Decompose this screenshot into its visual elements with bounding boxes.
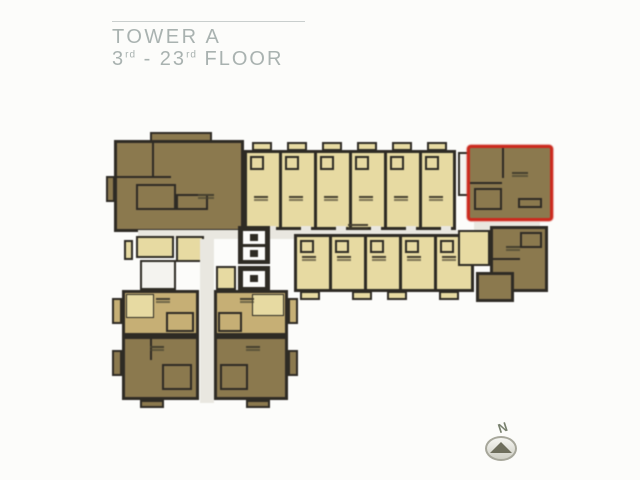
end-unit-label-mark <box>506 246 520 248</box>
unit-bath <box>250 156 264 170</box>
mid-row-divider <box>434 234 437 292</box>
unit-bath <box>285 156 299 170</box>
corridor-vertical <box>200 239 214 403</box>
stairs-core <box>140 260 176 290</box>
core-room <box>136 236 174 258</box>
top-row-divider <box>384 150 387 230</box>
unit-label-mark <box>254 196 268 198</box>
end-room <box>458 230 490 266</box>
highlighted-unit-bath <box>474 188 502 210</box>
top-row-divider <box>279 150 282 230</box>
highlighted-unit-partition-h <box>470 182 502 184</box>
unit-a-partition-v <box>152 143 154 177</box>
unit-bath <box>335 240 349 253</box>
bottom-r2-right-bath <box>220 364 248 390</box>
balcony <box>392 142 412 151</box>
elevator-car <box>250 250 258 257</box>
highlighted-unit-closet <box>518 198 542 208</box>
corridor-label-mark <box>348 224 368 226</box>
unit-label-mark <box>324 196 338 198</box>
unit-label-mark <box>359 196 373 198</box>
unit-bath <box>440 240 454 253</box>
end-unit-partition <box>492 258 520 260</box>
balcony <box>288 298 298 324</box>
unit-label-mark <box>289 196 303 198</box>
top-row-divider <box>419 150 422 230</box>
highlighted-unit-partition-v <box>502 148 504 178</box>
core-balcony <box>124 240 133 260</box>
unit-label-mark <box>302 256 316 258</box>
balcony <box>300 291 320 300</box>
balcony <box>246 400 270 408</box>
unit-label-mark <box>394 196 408 198</box>
unit-a-label-mark <box>198 194 214 196</box>
unit-a-body <box>114 140 244 232</box>
compass-dial-icon <box>485 436 517 461</box>
balcony <box>322 142 342 151</box>
unit-bath <box>405 240 419 253</box>
elevator-car <box>250 234 258 241</box>
bottom-r1-right-bath <box>218 312 242 332</box>
balcony <box>352 291 372 300</box>
bottom-r2-left-bath <box>162 364 192 390</box>
balcony <box>439 291 459 300</box>
balcony <box>427 142 447 151</box>
unit-a-partition-h <box>117 176 171 178</box>
unit-a-bath-2 <box>176 194 208 210</box>
balcony <box>387 291 407 300</box>
unit-bath <box>300 240 314 253</box>
unit-bath <box>390 156 404 170</box>
end-unit-annex <box>476 272 514 302</box>
unit-bath <box>370 240 384 253</box>
balcony <box>252 142 272 151</box>
service-room <box>216 266 236 290</box>
unit-label-mark <box>150 346 164 348</box>
bottom-r1-right-room <box>252 294 284 316</box>
unit-label-mark <box>372 256 386 258</box>
unit-bath <box>355 156 369 170</box>
unit-label-mark <box>442 256 456 258</box>
unit-label-mark <box>407 256 421 258</box>
balcony <box>357 142 377 151</box>
unit-a-bath <box>136 184 176 210</box>
bottom-r2-left-partition <box>150 338 152 360</box>
unit-label-mark <box>156 298 170 300</box>
mid-row-divider <box>329 234 332 292</box>
unit-bath <box>425 156 439 170</box>
unit-bath <box>320 156 334 170</box>
top-row-divider <box>314 150 317 230</box>
bottom-r1-left-bath <box>166 312 194 332</box>
balcony <box>140 400 164 408</box>
screenshot-root: TOWER A 3rd - 23rd FLOOR N <box>0 0 640 480</box>
end-unit-bath <box>520 232 542 248</box>
elevator-car <box>250 275 258 282</box>
balcony <box>287 142 307 151</box>
floorplan <box>0 0 640 480</box>
balcony <box>288 350 298 376</box>
unit-a-top-block <box>150 132 212 142</box>
mid-row-divider <box>399 234 402 292</box>
balcony <box>112 350 122 376</box>
bottom-r1-left-room <box>126 294 154 318</box>
unit-label-mark <box>337 256 351 258</box>
unit-label-mark <box>240 298 254 300</box>
compass-needle-icon <box>490 442 512 453</box>
unit-a-balcony <box>106 176 115 202</box>
top-row-divider <box>349 150 352 230</box>
mid-row-divider <box>364 234 367 292</box>
unit-label-mark <box>429 196 443 198</box>
highlighted-unit-label-mark <box>512 172 528 174</box>
balcony <box>112 298 122 324</box>
unit-label-mark <box>246 346 260 348</box>
